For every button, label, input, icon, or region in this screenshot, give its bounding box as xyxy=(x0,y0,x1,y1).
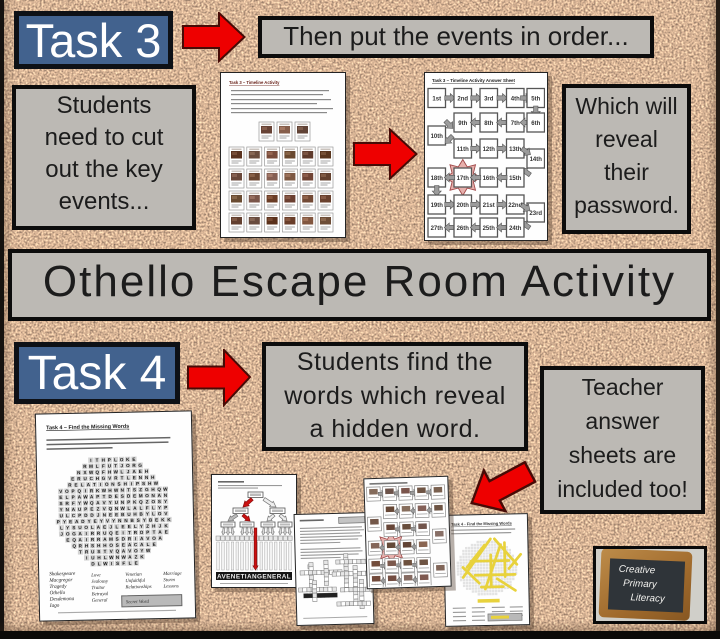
svg-text:Iago: Iago xyxy=(49,603,60,609)
svg-text:S: S xyxy=(91,543,94,548)
svg-text:E: E xyxy=(94,519,97,524)
svg-text:L: L xyxy=(98,561,101,566)
svg-text:W: W xyxy=(103,561,108,566)
svg-text:W: W xyxy=(146,548,151,553)
svg-text:O: O xyxy=(145,493,149,498)
svg-text:Y: Y xyxy=(143,518,146,523)
svg-text:16th: 16th xyxy=(483,176,496,182)
svg-text:L: L xyxy=(152,505,155,510)
svg-text:E: E xyxy=(121,524,124,529)
svg-text:I: I xyxy=(122,530,123,535)
svg-text:O: O xyxy=(126,463,130,468)
svg-text:15th: 15th xyxy=(509,176,522,182)
svg-text:Marriage: Marriage xyxy=(162,572,182,577)
svg-text:I: I xyxy=(85,488,86,493)
svg-text:O: O xyxy=(84,525,88,530)
svg-text:Venetian: Venetian xyxy=(125,572,142,577)
svg-text:23rd: 23rd xyxy=(529,211,542,217)
svg-text:2nd: 2nd xyxy=(457,96,468,102)
svg-text:W: W xyxy=(163,487,168,492)
svg-text:E: E xyxy=(139,469,142,474)
svg-text:Secret Word: Secret Word xyxy=(126,600,150,605)
svg-text:L: L xyxy=(147,542,150,547)
svg-text:Y: Y xyxy=(78,501,81,506)
svg-text:10th: 10th xyxy=(431,134,444,140)
svg-text:M: M xyxy=(109,537,113,542)
svg-text:Storm: Storm xyxy=(163,578,175,583)
svg-text:Q: Q xyxy=(77,489,81,494)
svg-text:T: T xyxy=(128,530,131,535)
svg-text:S: S xyxy=(117,482,120,487)
svg-text:11th: 11th xyxy=(457,147,469,153)
svg-text:O: O xyxy=(120,457,124,462)
svg-text:7th: 7th xyxy=(511,121,520,127)
svg-text:E: E xyxy=(133,493,136,498)
svg-text:Relationships: Relationships xyxy=(124,585,151,591)
svg-text:O: O xyxy=(140,530,144,535)
svg-text:Task 4 – Find the Missing Word: Task 4 – Find the Missing Words xyxy=(46,424,129,432)
svg-text:E: E xyxy=(134,561,137,566)
svg-text:S: S xyxy=(137,518,140,523)
svg-text:I: I xyxy=(131,481,132,486)
svg-text:F: F xyxy=(146,505,149,510)
svg-text:Q: Q xyxy=(72,537,76,542)
svg-text:E: E xyxy=(128,524,131,529)
svg-text:E: E xyxy=(115,530,118,535)
svg-text:S: S xyxy=(142,481,145,486)
svg-text:3rd: 3rd xyxy=(484,96,494,102)
svg-text:P: P xyxy=(127,500,130,505)
svg-text:T: T xyxy=(114,463,117,468)
svg-text:L: L xyxy=(91,525,94,530)
svg-text:P: P xyxy=(72,495,75,500)
svg-text:G: G xyxy=(72,531,76,536)
svg-text:P: P xyxy=(108,457,111,462)
svg-text:L: L xyxy=(134,524,137,529)
svg-text:E: E xyxy=(115,512,118,517)
svg-text:Task 3 – Timeline Activity Ans: Task 3 – Timeline Activity Answer Sheet xyxy=(432,78,516,83)
svg-text:6th: 6th xyxy=(531,121,540,127)
svg-text:Y: Y xyxy=(140,524,143,529)
svg-text:P: P xyxy=(96,494,99,499)
svg-text:P: P xyxy=(136,481,139,486)
svg-text:P: P xyxy=(78,513,81,518)
svg-text:I: I xyxy=(90,458,91,463)
svg-text:Y: Y xyxy=(140,548,143,553)
svg-text:O: O xyxy=(152,536,156,541)
svg-text:Q: Q xyxy=(157,487,161,492)
svg-text:G: G xyxy=(145,487,149,492)
svg-text:Q: Q xyxy=(90,500,94,505)
svg-text:F: F xyxy=(72,501,75,506)
svg-text:S: S xyxy=(116,537,119,542)
svg-text:S: S xyxy=(72,525,75,530)
svg-text:W: W xyxy=(83,494,88,499)
svg-text:S: S xyxy=(116,561,119,566)
svg-text:T: T xyxy=(127,487,130,492)
svg-text:O: O xyxy=(105,482,109,487)
svg-text:Q: Q xyxy=(139,499,143,504)
svg-text:P: P xyxy=(57,519,60,524)
svg-text:E: E xyxy=(155,517,158,522)
svg-text:8th: 8th xyxy=(484,121,493,127)
svg-text:14th: 14th xyxy=(530,157,543,163)
svg-text:E: E xyxy=(71,476,74,481)
svg-text:E: E xyxy=(115,494,118,499)
svg-text:L: L xyxy=(120,469,123,474)
svg-text:I: I xyxy=(86,555,87,560)
svg-text:Betrayal: Betrayal xyxy=(92,592,109,597)
svg-text:AVENETIANGENERAL: AVENETIANGENERAL xyxy=(217,574,291,581)
svg-text:Traitor: Traitor xyxy=(91,586,105,591)
svg-text:E: E xyxy=(90,507,93,512)
svg-text:L: L xyxy=(127,506,130,511)
svg-text:L: L xyxy=(127,475,130,480)
svg-text:T: T xyxy=(96,458,99,463)
svg-text:E: E xyxy=(103,525,106,530)
svg-text:1st: 1st xyxy=(432,96,441,102)
svg-text:Desdemona: Desdemona xyxy=(49,596,75,603)
svg-text:19th: 19th xyxy=(431,203,444,209)
svg-text:I: I xyxy=(86,537,87,542)
svg-text:27th: 27th xyxy=(431,226,444,232)
svg-text:I: I xyxy=(86,531,87,536)
svg-text:Y: Y xyxy=(158,505,161,510)
svg-text:T: T xyxy=(103,494,106,499)
svg-text:Lessons: Lessons xyxy=(162,584,178,589)
svg-text:L: L xyxy=(66,513,69,518)
svg-text:S: S xyxy=(97,549,100,554)
svg-text:9th: 9th xyxy=(458,121,467,127)
svg-text:Jealousy: Jealousy xyxy=(91,579,109,584)
svg-text:L: L xyxy=(115,524,118,529)
svg-text:L: L xyxy=(140,506,143,511)
svg-text:M: M xyxy=(139,493,143,498)
svg-text:E: E xyxy=(165,529,168,534)
svg-text:W: W xyxy=(89,470,94,475)
svg-text:Y: Y xyxy=(112,518,115,523)
svg-text:S: S xyxy=(59,501,62,506)
svg-text:Q: Q xyxy=(72,544,76,549)
svg-text:Z: Z xyxy=(97,506,100,511)
svg-text:W: W xyxy=(114,488,119,493)
svg-text:P: P xyxy=(71,489,74,494)
svg-text:T: T xyxy=(104,549,107,554)
svg-text:12th: 12th xyxy=(483,147,496,153)
svg-text:O: O xyxy=(109,543,113,548)
svg-text:Y: Y xyxy=(109,500,112,505)
svg-text:Love: Love xyxy=(90,573,101,578)
svg-text:S: S xyxy=(116,543,119,548)
svg-text:O: O xyxy=(158,511,162,516)
svg-text:F: F xyxy=(102,470,105,475)
svg-text:E: E xyxy=(133,475,136,480)
svg-text:Task 3 – Timeline Activity: Task 3 – Timeline Activity xyxy=(229,80,280,85)
svg-text:25th: 25th xyxy=(483,226,496,232)
svg-text:P: P xyxy=(146,530,149,535)
svg-text:21st: 21st xyxy=(483,203,495,209)
svg-text:P: P xyxy=(84,507,87,512)
svg-text:17th: 17th xyxy=(457,176,470,182)
svg-text:L: L xyxy=(104,555,107,560)
svg-text:O: O xyxy=(66,531,70,536)
svg-text:E: E xyxy=(109,512,112,517)
svg-text:Y: Y xyxy=(164,499,167,504)
svg-text:Y: Y xyxy=(60,507,63,512)
svg-text:20th: 20th xyxy=(457,203,470,209)
svg-text:I: I xyxy=(111,561,112,566)
svg-text:E: E xyxy=(122,543,125,548)
svg-text:P: P xyxy=(164,505,167,510)
svg-text:Z: Z xyxy=(139,487,142,492)
svg-text:W: W xyxy=(109,555,114,560)
svg-text:S: S xyxy=(121,494,124,499)
svg-text:24th: 24th xyxy=(509,226,522,232)
svg-text:Y: Y xyxy=(63,519,66,524)
svg-text:I: I xyxy=(100,482,101,487)
svg-text:S: S xyxy=(133,487,136,492)
svg-text:F: F xyxy=(102,464,105,469)
svg-text:G: G xyxy=(102,476,106,481)
svg-text:18th: 18th xyxy=(431,176,444,182)
svg-text:E: E xyxy=(69,519,72,524)
svg-text:Y: Y xyxy=(100,519,103,524)
svg-text:W: W xyxy=(121,555,126,560)
svg-text:T: T xyxy=(152,530,155,535)
svg-text:W: W xyxy=(154,481,159,486)
svg-text:L: L xyxy=(114,457,117,462)
svg-text:G: G xyxy=(138,463,142,468)
svg-text:E: E xyxy=(59,495,62,500)
svg-text:E: E xyxy=(66,538,69,543)
svg-text:L: L xyxy=(81,482,84,487)
svg-text:T: T xyxy=(121,475,124,480)
svg-text:5th: 5th xyxy=(531,96,540,102)
svg-text:Q: Q xyxy=(116,549,120,554)
svg-text:W: W xyxy=(83,501,88,506)
svg-text:Y: Y xyxy=(66,525,69,530)
svg-text:E: E xyxy=(153,542,156,547)
svg-text:E: E xyxy=(132,457,135,462)
svg-text:13th: 13th xyxy=(509,147,522,153)
svg-text:W: W xyxy=(102,488,107,493)
svg-text:Q: Q xyxy=(109,506,113,511)
svg-text:W: W xyxy=(114,469,119,474)
svg-text:Z: Z xyxy=(135,554,138,559)
svg-text:O: O xyxy=(134,548,138,553)
svg-text:L: L xyxy=(129,561,132,566)
svg-text:26th: 26th xyxy=(457,226,470,232)
svg-text:T: T xyxy=(79,550,82,555)
svg-text:Z: Z xyxy=(146,499,149,504)
svg-text:W: W xyxy=(120,506,125,511)
svg-text:L: L xyxy=(152,511,155,516)
svg-text:T: T xyxy=(93,482,96,487)
svg-text:4th: 4th xyxy=(511,96,520,102)
svg-text:L: L xyxy=(60,525,63,530)
svg-text:F: F xyxy=(122,561,125,566)
svg-text:O: O xyxy=(65,489,69,494)
svg-text:Unfaithful: Unfaithful xyxy=(125,579,145,584)
svg-text:L: L xyxy=(96,464,99,469)
svg-text:Y: Y xyxy=(88,519,91,524)
svg-text:E: E xyxy=(74,482,77,487)
svg-text:O: O xyxy=(151,499,155,504)
svg-text:M: M xyxy=(89,464,93,469)
svg-text:Q: Q xyxy=(109,531,113,536)
svg-text:I: I xyxy=(135,536,136,541)
svg-text:L: L xyxy=(66,495,69,500)
svg-text:Z: Z xyxy=(146,524,149,529)
svg-text:Q: Q xyxy=(95,470,99,475)
svg-text:Y: Y xyxy=(146,512,149,517)
svg-text:S: S xyxy=(158,499,161,504)
svg-text:General: General xyxy=(92,598,108,603)
